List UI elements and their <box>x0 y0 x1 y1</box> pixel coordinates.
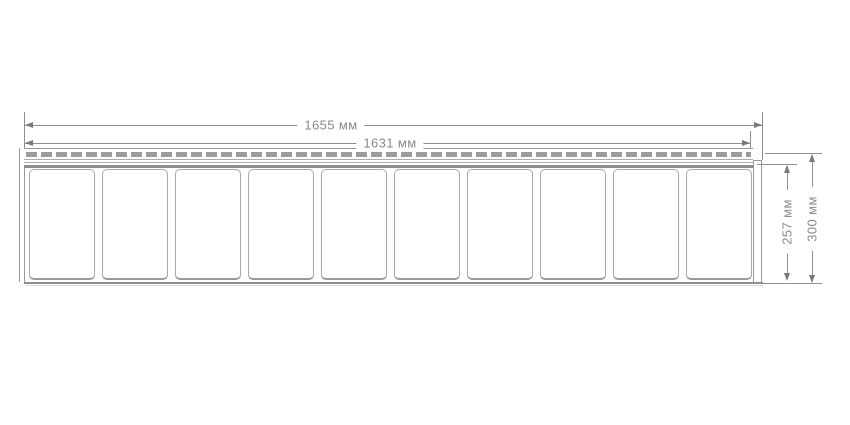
arrowhead-right-icon <box>742 140 750 146</box>
panel-tile <box>29 169 95 280</box>
dimension-label-overall-height: 300 мм <box>805 187 820 251</box>
panel-tiles-row <box>29 169 752 280</box>
panel-tile <box>102 169 168 280</box>
arrowhead-right-icon <box>754 122 762 128</box>
nail-hem-strip <box>24 148 753 168</box>
panel-tile <box>248 169 314 280</box>
dimension-line <box>25 125 762 126</box>
arrowhead-down-icon <box>809 275 815 283</box>
panel-right-lip <box>753 160 762 283</box>
strip-lock-band <box>24 165 753 168</box>
panel-tile <box>686 169 752 280</box>
nail-slot-row <box>26 152 751 157</box>
panel-tile <box>175 169 241 280</box>
dimension-label-visible-width: 1631 мм <box>356 136 423 151</box>
panel-bottom-shadow <box>26 285 763 286</box>
panel-tile <box>394 169 460 280</box>
extension-line-bottom <box>757 283 822 284</box>
extension-line-top <box>757 164 797 165</box>
panel-tile <box>540 169 606 280</box>
dimension-label-face-height: 257 мм <box>780 190 795 254</box>
strip-line <box>24 159 753 160</box>
strip-line <box>24 162 753 163</box>
arrowhead-left-icon <box>25 122 33 128</box>
panel-tile <box>467 169 533 280</box>
extension-line-right <box>762 112 763 160</box>
panel-left-edge <box>19 148 25 282</box>
arrowhead-up-icon <box>784 165 790 173</box>
dimension-label-overall-width: 1655 мм <box>297 118 364 133</box>
panel-tile <box>613 169 679 280</box>
panel-drawing-canvas: 1655 мм 1631 мм 257 мм <box>0 0 850 425</box>
arrowhead-up-icon <box>809 154 815 162</box>
arrowhead-left-icon <box>25 140 33 146</box>
panel-tile <box>321 169 387 280</box>
arrowhead-down-icon <box>784 273 790 281</box>
panel-bottom-edge <box>24 282 763 284</box>
